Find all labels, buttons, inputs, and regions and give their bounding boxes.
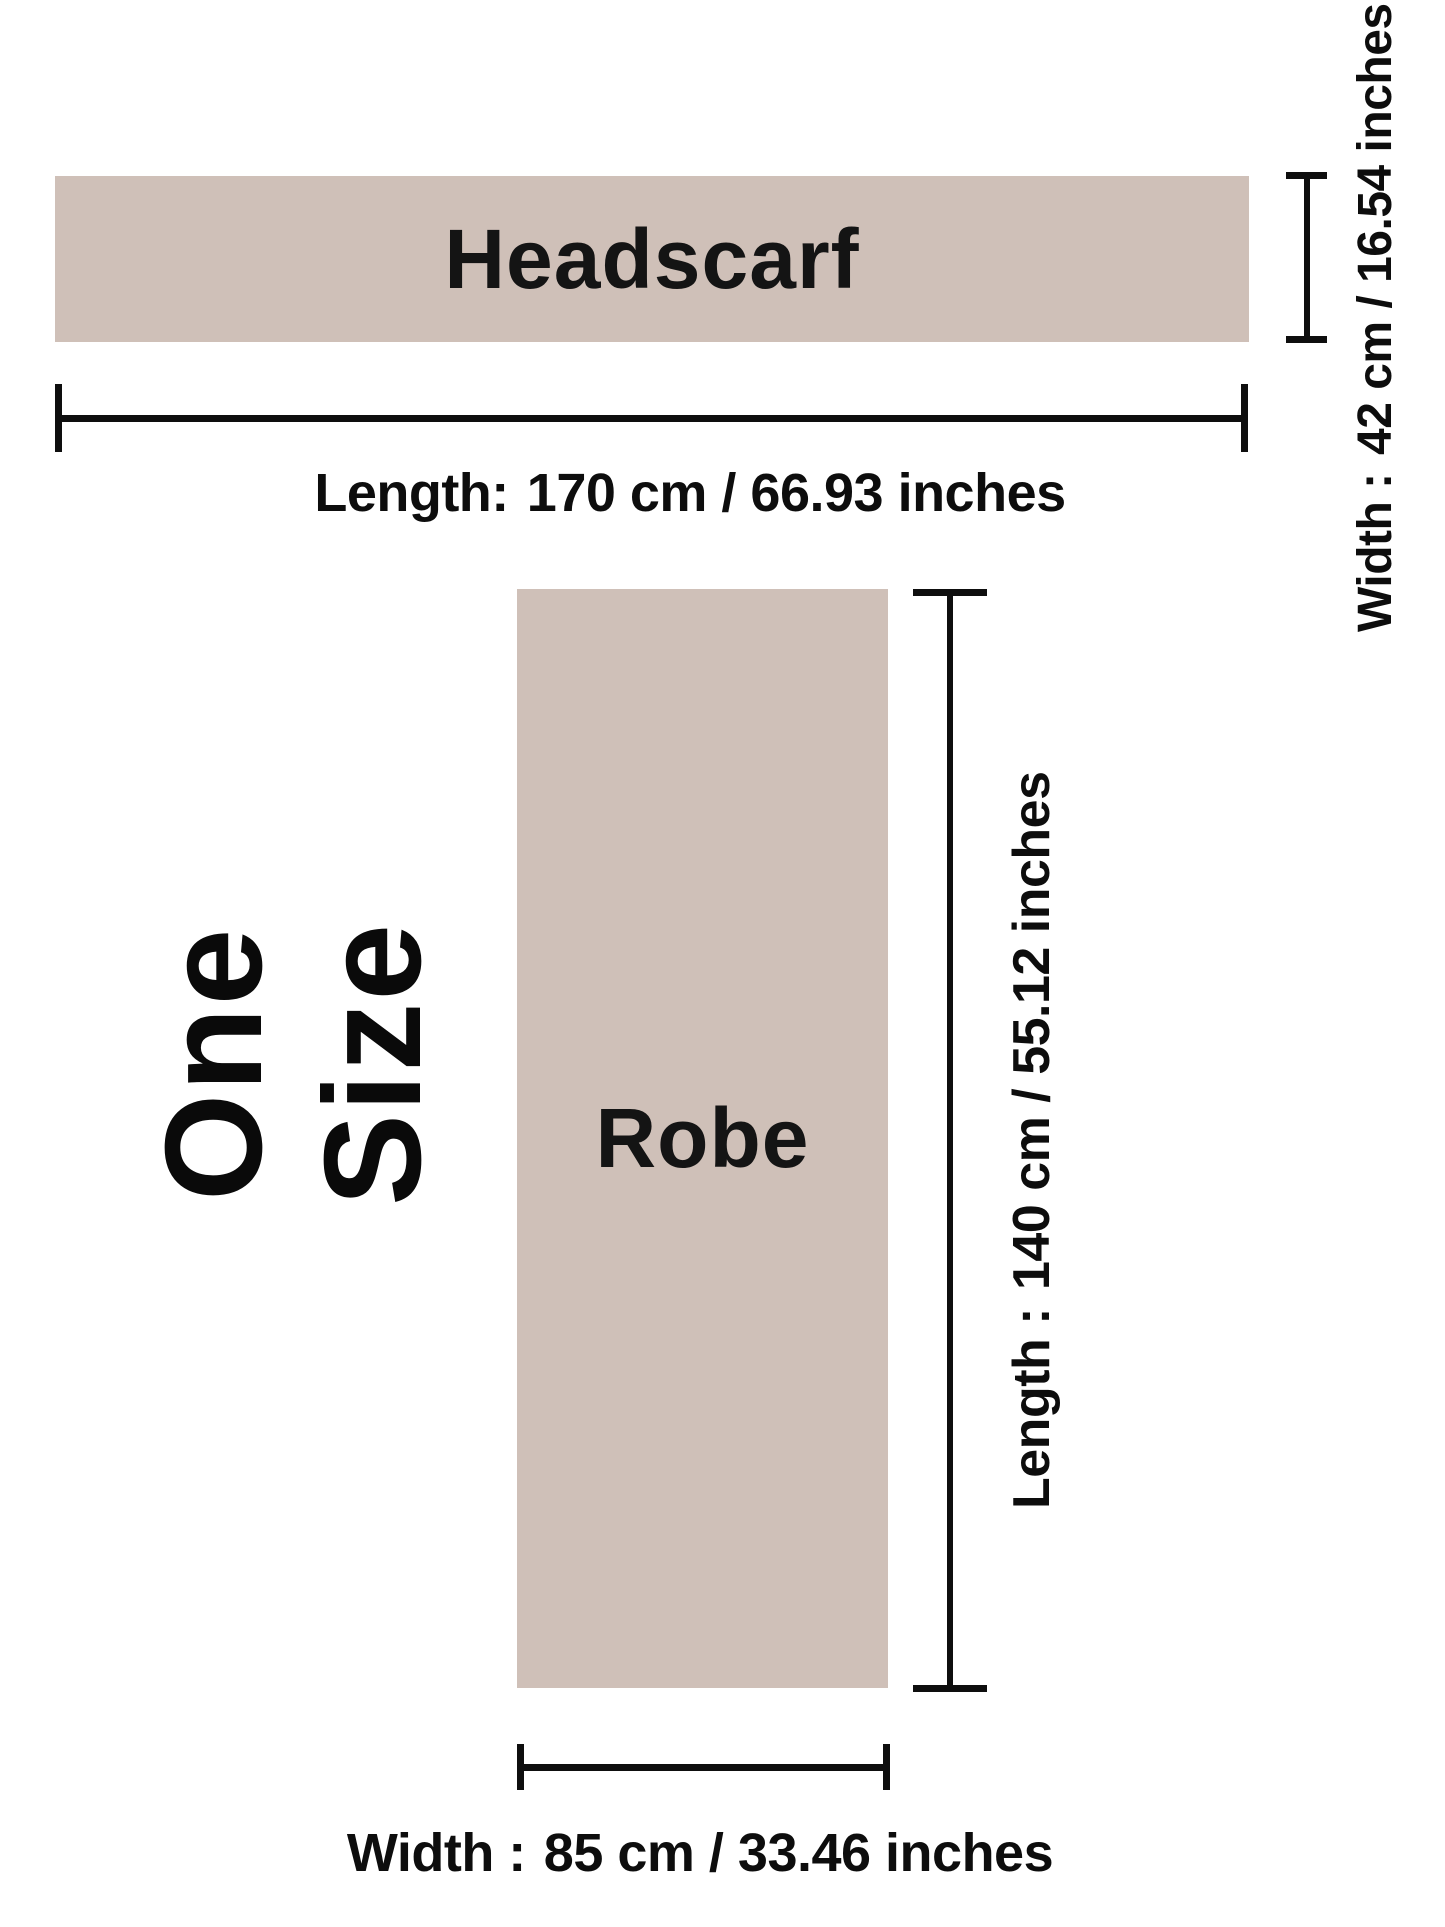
robe-length-dimension-line <box>913 589 987 1692</box>
headscarf-length-label: Length: <box>314 463 508 523</box>
robe-length-label: Length : <box>1003 1308 1061 1509</box>
headscarf-width-value: 42 cm / 16.54 inches <box>1349 4 1402 456</box>
robe-length-value: 140 cm / 55.12 inches <box>1003 771 1061 1290</box>
robe-width-value: 85 cm / 33.46 inches <box>544 1823 1053 1883</box>
robe-swatch: Robe <box>517 589 888 1688</box>
dimension-bar <box>1304 172 1310 343</box>
robe-label: Robe <box>596 1090 810 1187</box>
headscarf-width-text: Width :42 cm / 16.54 inches <box>1348 28 1410 632</box>
robe-length-text: Length :140 cm / 55.12 inches <box>1002 748 1068 1532</box>
headscarf-length-value: 170 cm / 66.93 inches <box>527 463 1066 523</box>
dimension-bar <box>947 589 953 1692</box>
headscarf-length-text: Length:170 cm / 66.93 inches <box>280 462 1100 524</box>
dimension-cap <box>1286 336 1327 343</box>
headscarf-width-label: Width : <box>1349 473 1402 632</box>
dimension-cap <box>1241 384 1248 452</box>
dimension-cap <box>913 1685 987 1692</box>
robe-width-label: Width : <box>347 1823 526 1883</box>
headscarf-width-dimension-line <box>1286 172 1327 343</box>
robe-width-dimension-line <box>517 1744 890 1790</box>
headscarf-swatch: Headscarf <box>55 176 1249 342</box>
robe-width-text: Width :85 cm / 33.46 inches <box>310 1822 1090 1884</box>
dimension-cap <box>883 1744 890 1790</box>
one-size-label: One Size <box>135 778 305 1350</box>
headscarf-length-dimension-line <box>55 384 1248 452</box>
dimension-bar <box>517 1764 890 1771</box>
headscarf-label: Headscarf <box>444 211 859 308</box>
size-chart: { "theme": { "background": "#ffffff", "s… <box>0 0 1445 1927</box>
dimension-bar <box>55 415 1248 422</box>
